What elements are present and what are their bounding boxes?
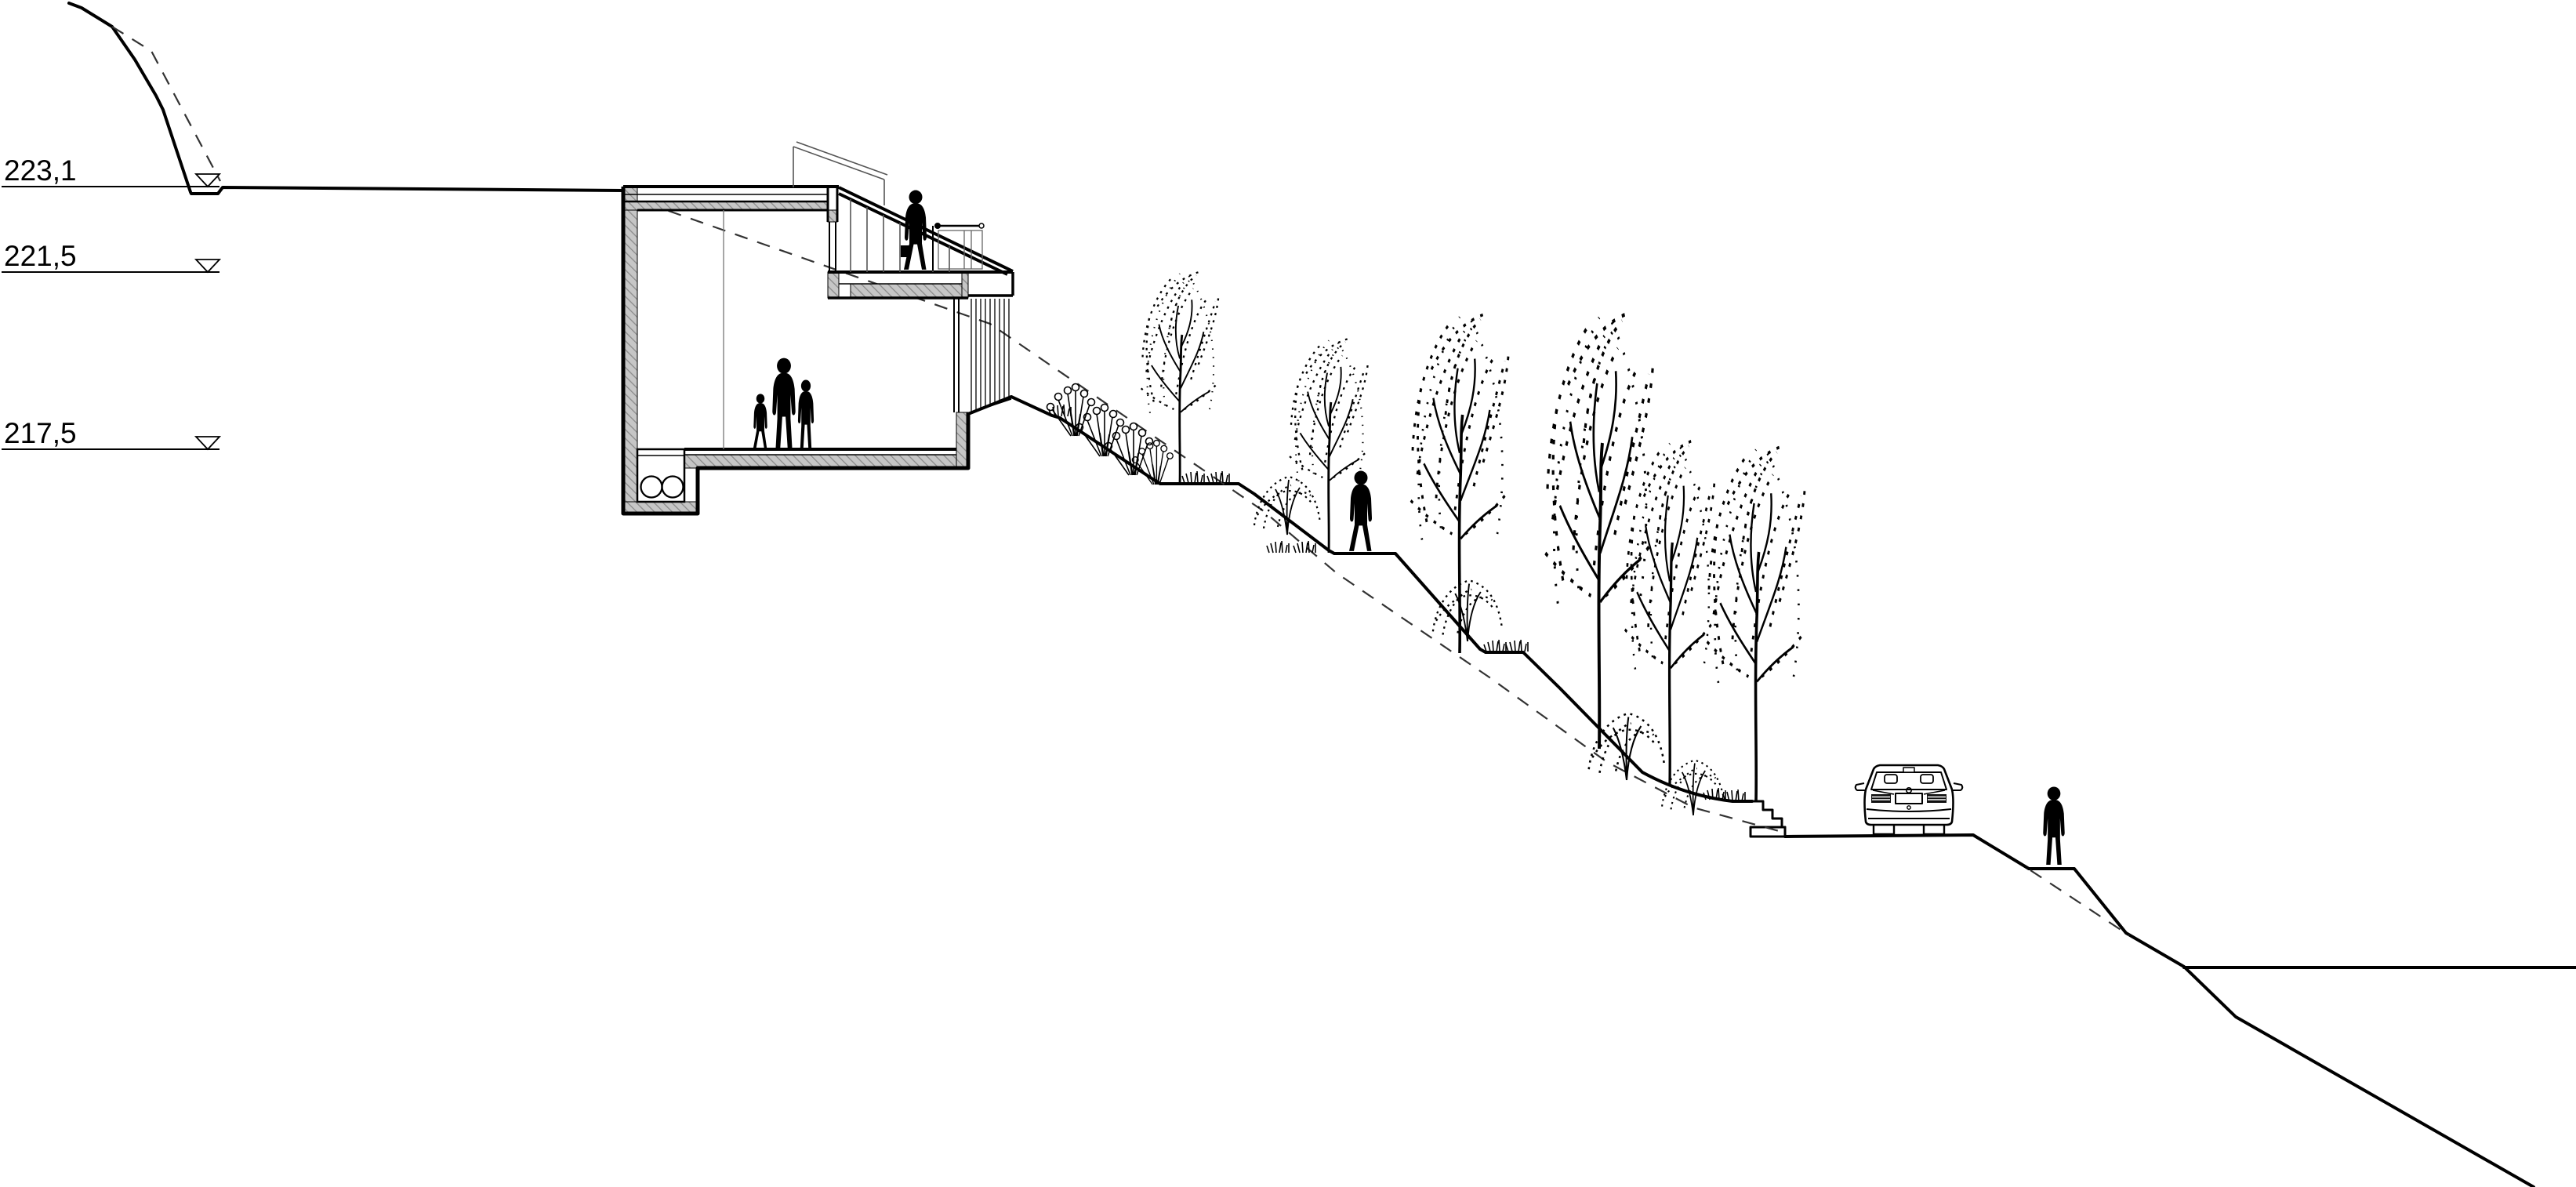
wildflowers <box>1105 423 1153 476</box>
terrace-person <box>901 191 927 270</box>
family-group <box>753 358 814 449</box>
grass-tuft <box>1293 541 1315 553</box>
child-figure <box>753 394 767 448</box>
bag-icon <box>901 245 909 257</box>
car-headrest <box>1885 775 1897 783</box>
elevation-label-221-5: 221,5 <box>4 240 77 272</box>
house-section <box>623 142 1013 514</box>
grass-tuft <box>1484 640 1506 652</box>
tree <box>1707 446 1805 801</box>
child-figure <box>798 379 814 448</box>
tree <box>1141 271 1219 484</box>
railing-end-dot-icon <box>935 223 941 229</box>
grass-tuft <box>1182 471 1204 483</box>
bush <box>1662 760 1725 815</box>
tree <box>1625 440 1714 784</box>
car-license-plate <box>1896 793 1922 804</box>
tree <box>1545 313 1653 749</box>
section-drawing-sheet: 223,1 221,5 217,5 <box>0 0 2576 1187</box>
elevation-markers: 223,1 221,5 217,5 <box>2 154 220 449</box>
car-brake-light <box>1903 768 1914 772</box>
terrace-glazing-mullions <box>851 199 949 272</box>
bush <box>1254 477 1320 535</box>
car-mirror <box>1953 783 1962 790</box>
hillside-section-drawing: 223,1 221,5 217,5 <box>0 0 2576 1187</box>
garden-stairs <box>1751 801 1785 837</box>
balcony-railing <box>933 223 984 271</box>
facade-louvers <box>969 299 1011 413</box>
road-and-lower-slope-line <box>1785 835 2534 1187</box>
car-rear-window <box>1871 772 1947 790</box>
car-mirror <box>1856 783 1865 790</box>
terrace-left-glazing <box>829 222 836 272</box>
terrain-profile <box>69 3 2576 1187</box>
elevation-marker-217-5: 217,5 <box>2 417 220 449</box>
grass-tuft <box>1506 640 1528 652</box>
slope-walking-person <box>1349 471 1372 551</box>
car-headrest <box>1921 775 1933 783</box>
datum-triangle-icon <box>196 260 220 272</box>
vegetation <box>1047 271 1805 815</box>
railing-end-ring-icon <box>979 223 984 228</box>
upper-terrain-line <box>69 3 623 194</box>
wildflowers <box>1076 405 1124 457</box>
datum-triangle-icon <box>196 174 220 187</box>
car <box>1856 765 1963 834</box>
existing-grade-dashed-line <box>112 27 2129 935</box>
elevation-label-223-1: 223,1 <box>4 154 77 187</box>
road-walking-person <box>2043 787 2064 865</box>
elevation-marker-221-5: 221,5 <box>2 240 220 272</box>
adult-figure <box>772 358 795 448</box>
datum-triangle-icon <box>196 437 220 449</box>
grass-tuft <box>1267 541 1289 553</box>
basement-pit <box>637 449 684 502</box>
elevation-label-217-5: 217,5 <box>4 417 77 449</box>
bush <box>1433 580 1502 641</box>
lower-right-glazing <box>954 298 959 412</box>
